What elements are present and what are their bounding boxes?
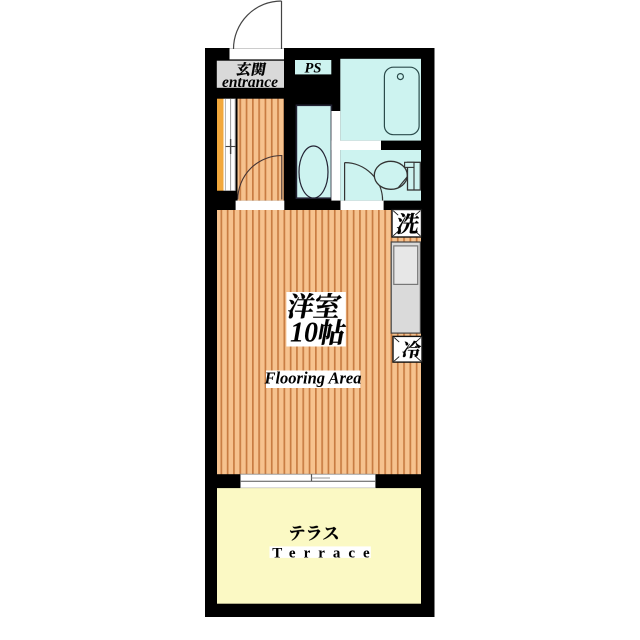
svg-text:10: 10 xyxy=(290,318,318,349)
svg-text:Flooring Area: Flooring Area xyxy=(263,369,361,388)
svg-text:PS: PS xyxy=(305,60,322,76)
svg-text:Terrace: Terrace xyxy=(272,545,377,561)
svg-text:entrance: entrance xyxy=(222,74,278,91)
